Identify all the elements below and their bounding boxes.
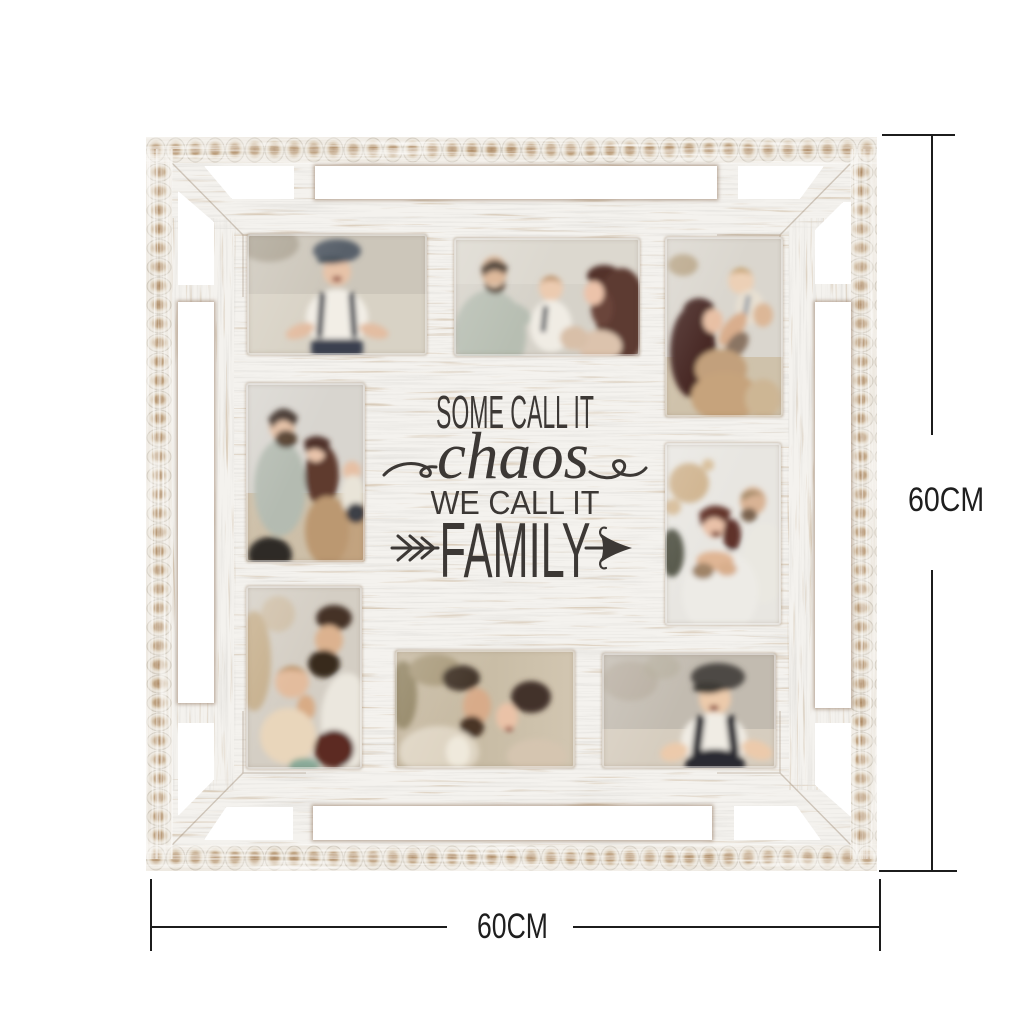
svg-text:FAMILY: FAMILY	[440, 506, 591, 594]
svg-text:chaos: chaos	[437, 419, 589, 493]
